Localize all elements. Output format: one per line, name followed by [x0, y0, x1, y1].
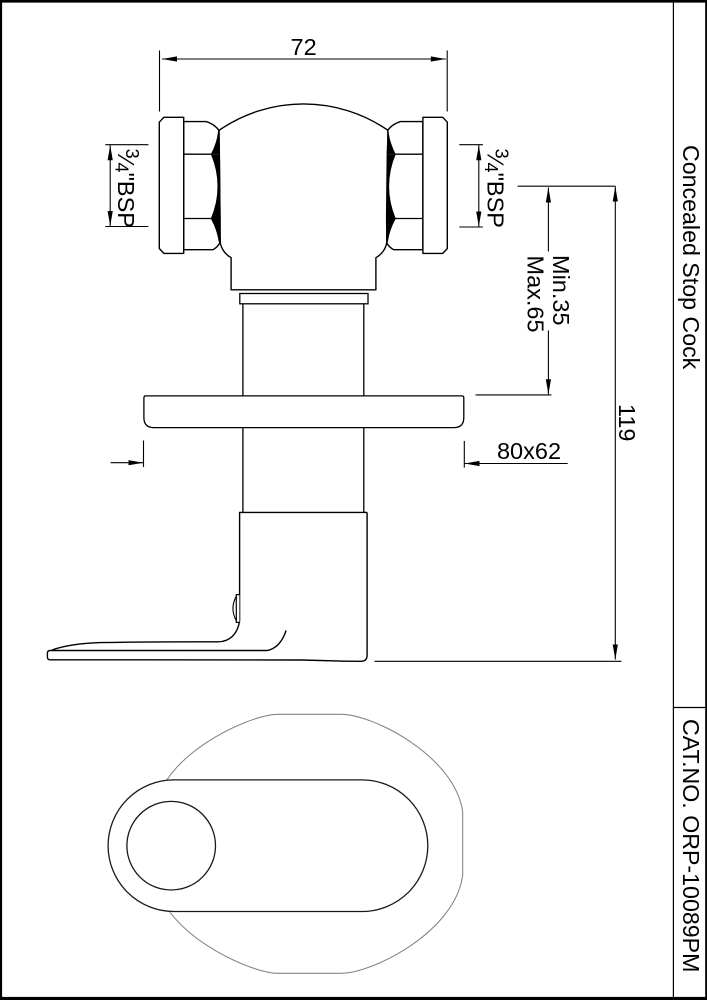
svg-text:Concealed Stop Cock: Concealed Stop Cock — [678, 145, 704, 370]
svg-text:72: 72 — [291, 34, 317, 60]
svg-text:3⁄4"BSP: 3⁄4"BSP — [112, 149, 143, 228]
svg-text:CAT.NO. ORP-10089PM: CAT.NO. ORP-10089PM — [678, 719, 704, 972]
svg-text:3⁄4"BSP: 3⁄4"BSP — [481, 149, 512, 228]
svg-text:Min.35Max.65: Min.35Max.65 — [522, 255, 574, 333]
svg-text:80x62: 80x62 — [497, 438, 561, 464]
svg-text:119: 119 — [614, 404, 640, 441]
